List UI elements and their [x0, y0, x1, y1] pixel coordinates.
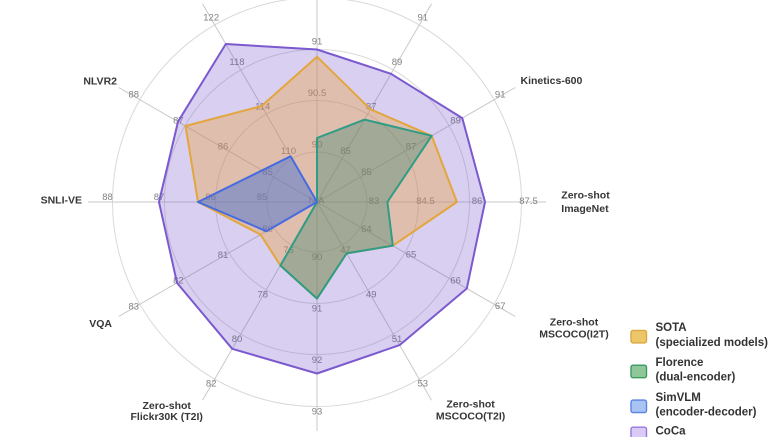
svg-text:91: 91	[495, 90, 506, 101]
svg-text:122: 122	[203, 12, 219, 23]
svg-text:Kinetics-600: Kinetics-600	[521, 75, 583, 87]
svg-text:SimVLM: SimVLM	[656, 392, 701, 404]
svg-text:CoCa: CoCa	[656, 426, 687, 438]
svg-text:53: 53	[418, 379, 429, 390]
svg-text:91: 91	[312, 37, 323, 48]
svg-text:83: 83	[129, 301, 140, 312]
svg-text:SOTA: SOTA	[656, 322, 687, 334]
svg-text:Zero-shot: Zero-shot	[561, 189, 610, 201]
svg-text:89: 89	[392, 57, 403, 68]
svg-text:Zero-shot: Zero-shot	[550, 317, 599, 329]
svg-text:Zero-shot: Zero-shot	[446, 399, 495, 411]
svg-text:ImageNet: ImageNet	[561, 203, 609, 215]
svg-text:Florence: Florence	[656, 357, 704, 369]
svg-text:SNLI-VE: SNLI-VE	[41, 194, 82, 206]
svg-text:VQA: VQA	[89, 318, 112, 330]
svg-text:Zero-shot: Zero-shot	[142, 400, 191, 412]
svg-text:(dual-encoder): (dual-encoder)	[656, 372, 736, 384]
svg-text:88: 88	[129, 90, 140, 101]
svg-text:67: 67	[495, 301, 506, 312]
svg-text:MSCOCO(I2T): MSCOCO(I2T)	[539, 329, 608, 341]
svg-text:87.5: 87.5	[519, 196, 538, 207]
svg-text:Flickr30K (T2I): Flickr30K (T2I)	[131, 411, 203, 423]
svg-text:(specialized models): (specialized models)	[656, 337, 769, 349]
svg-text:NLVR2: NLVR2	[83, 76, 117, 88]
svg-text:MSCOCO(T2I): MSCOCO(T2I)	[436, 411, 505, 423]
svg-text:(encoder-decoder): (encoder-decoder)	[656, 407, 757, 419]
svg-text:82: 82	[206, 379, 217, 390]
svg-text:88: 88	[102, 192, 113, 203]
svg-text:91: 91	[418, 12, 429, 23]
svg-text:93: 93	[312, 407, 323, 418]
